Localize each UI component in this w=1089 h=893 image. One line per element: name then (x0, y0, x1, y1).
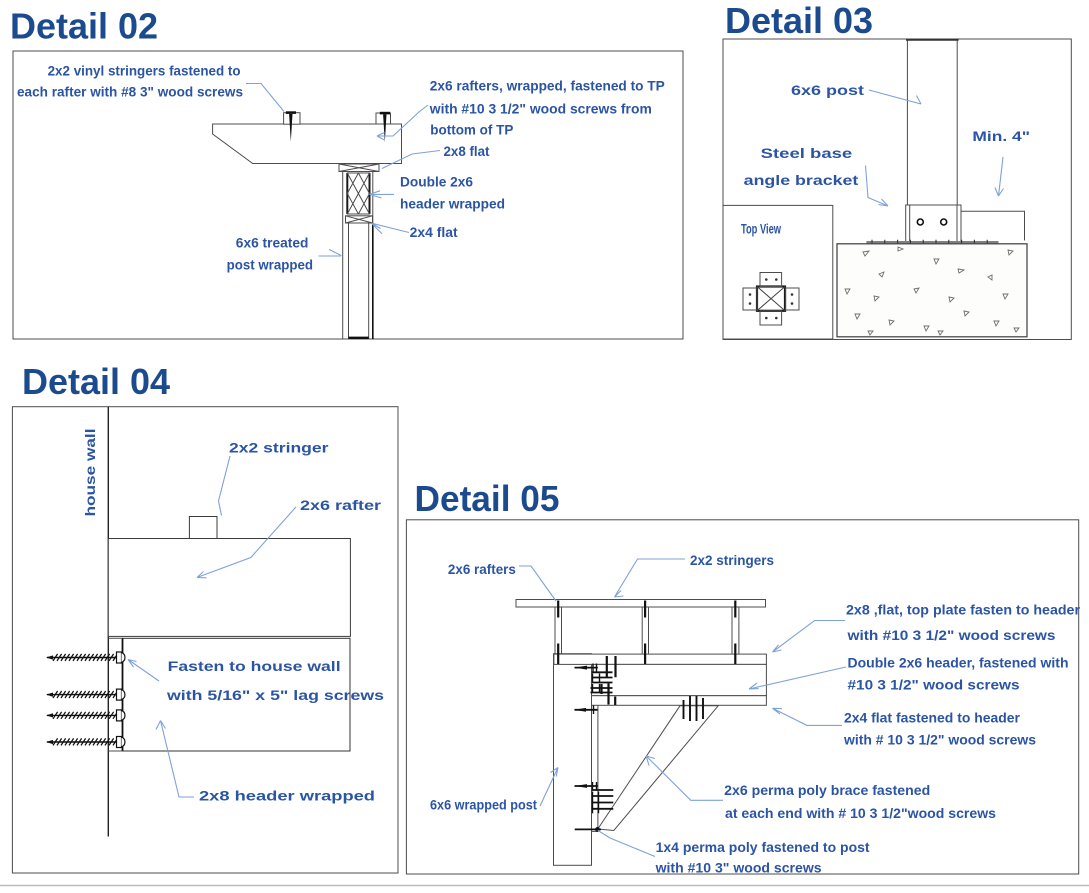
svg-text:Steel base: Steel base (761, 145, 853, 161)
svg-text:2x6 rafters, wrapped, fastened: 2x6 rafters, wrapped, fastened to TP (430, 78, 665, 94)
svg-text:2x8 ,flat, top plate fasten to: 2x8 ,flat, top plate fasten to header (846, 602, 1081, 618)
svg-text:1x4 perma poly fastened to pos: 1x4 perma poly fastened to post (656, 839, 870, 855)
svg-text:bottom of TP: bottom of TP (430, 122, 513, 138)
svg-text:Double 2x6 header, fastened wi: Double 2x6 header, fastened with (848, 655, 1069, 671)
svg-text:with #10 3" wood screws: with #10 3" wood screws (655, 860, 822, 876)
svg-text:2x2 vinyl stringers fastened t: 2x2 vinyl stringers fastened to (48, 63, 241, 79)
svg-text:with #10 3 1/2" wood screws f: with #10 3 1/2" wood screws from (429, 101, 652, 117)
svg-text:with 5/16" x 5" lag screws: with 5/16" x 5" lag screws (166, 687, 385, 703)
svg-text:post wrapped: post wrapped (227, 257, 313, 273)
svg-text:2x4 flat: 2x4 flat (410, 224, 458, 240)
svg-text:2x4 flat fastened to header: 2x4 flat fastened to header (844, 710, 1021, 726)
svg-text:with #10 3 1/2" wood screws: with #10 3 1/2" wood screws (846, 627, 1055, 643)
svg-text:2x6 rafter: 2x6 rafter (300, 497, 382, 513)
svg-text:Detail 03: Detail 03 (725, 0, 873, 41)
svg-text:at each end with # 10 3 1/2"wo: at each end with # 10 3 1/2"wood screws (725, 805, 996, 821)
svg-text:Double 2x6: Double 2x6 (400, 174, 473, 190)
svg-text:header wrapped: header wrapped (400, 196, 505, 212)
svg-text:2x6 rafters: 2x6 rafters (448, 561, 516, 577)
svg-text:Fasten to house wall: Fasten to house wall (168, 658, 341, 674)
svg-text:2x8 flat: 2x8 flat (444, 143, 490, 159)
svg-text:house wall: house wall (82, 429, 98, 517)
svg-text:#10 3 1/2" wood screws: #10 3 1/2" wood screws (848, 677, 1020, 693)
svg-text:Detail 02: Detail 02 (10, 6, 158, 47)
svg-text:with # 10 3 1/2" wood screws: with # 10 3 1/2" wood screws (843, 732, 1036, 748)
svg-text:6x6 post: 6x6 post (791, 82, 864, 98)
svg-text:2x2 stringer: 2x2 stringer (229, 440, 329, 456)
svg-text:Min. 4": Min. 4" (972, 128, 1030, 144)
svg-text:Detail 04: Detail 04 (22, 361, 170, 402)
svg-text:Detail 05: Detail 05 (415, 478, 560, 519)
svg-text:6x6 wrapped post: 6x6 wrapped post (430, 797, 537, 813)
svg-text:2x8 header wrapped: 2x8 header wrapped (199, 788, 375, 804)
svg-text:2x6 perma poly brace fastened: 2x6 perma poly brace fastened (724, 782, 930, 798)
svg-text:6x6 treated: 6x6 treated (236, 235, 309, 251)
svg-text:each rafter with #8 3" wood sc: each rafter with #8 3" wood screws (17, 84, 243, 100)
svg-text:angle bracket: angle bracket (744, 172, 859, 188)
svg-text:2x2 stringers: 2x2 stringers (690, 552, 774, 568)
svg-text:Top View: Top View (741, 221, 781, 237)
